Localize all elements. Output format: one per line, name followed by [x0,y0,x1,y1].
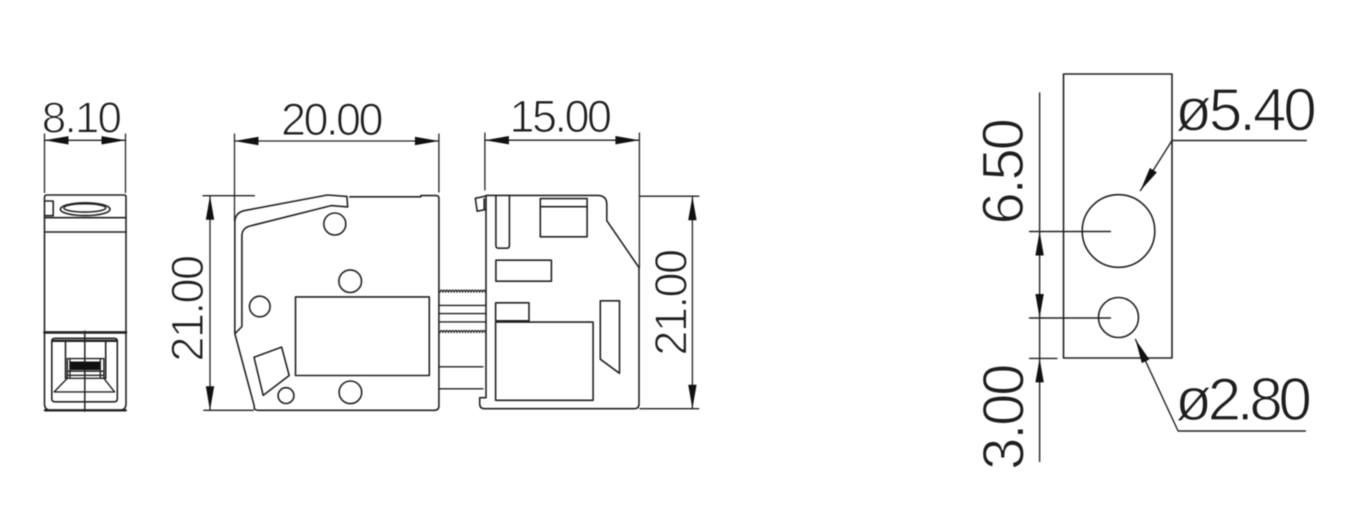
svg-text:21.00: 21.00 [162,256,213,362]
svg-text:8.10: 8.10 [42,94,121,143]
svg-text:ø5.40: ø5.40 [1175,77,1315,144]
svg-text:3.00: 3.00 [971,366,1036,470]
svg-text:6.50: 6.50 [971,120,1036,224]
svg-text:ø2.80: ø2.80 [1175,366,1310,433]
svg-text:20.00: 20.00 [281,94,383,145]
svg-text:15.00: 15.00 [509,91,611,142]
svg-text:21.00: 21.00 [646,250,697,356]
